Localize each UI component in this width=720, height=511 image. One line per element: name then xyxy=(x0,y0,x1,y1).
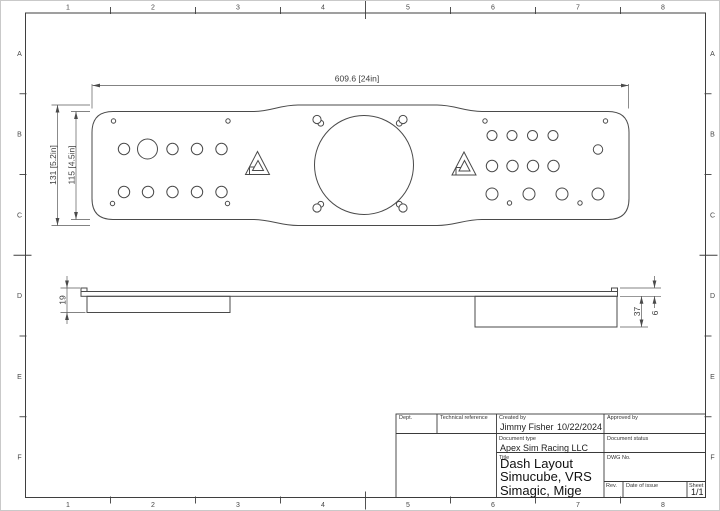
created-by-label: Created by xyxy=(499,415,526,421)
drawing-title-line3: Simagic, Mige xyxy=(500,484,582,498)
created-by-date: 10/22/2024 xyxy=(557,422,602,432)
rev-label: Rev. xyxy=(606,483,617,489)
created-by-name: Jimmy Fisher xyxy=(500,422,554,432)
document-type-label: Document type xyxy=(499,436,536,442)
document-type-value: Apex Sim Racing LLC xyxy=(500,443,588,453)
drawing-title-line1: Dash Layout xyxy=(500,457,573,471)
date-of-issue-label: Date of issue xyxy=(626,483,658,489)
document-status-label: Document status xyxy=(607,436,648,442)
approved-by-label: Approved by xyxy=(607,415,638,421)
technical-reference-label: Technical reference xyxy=(440,415,488,421)
dwg-no-label: DWG No. xyxy=(607,455,631,461)
title-block: Dept. Technical reference Created by App… xyxy=(0,0,720,511)
drawing-title-line2: Simucube, VRS xyxy=(500,470,592,484)
dept-label: Dept. xyxy=(399,415,412,421)
drawing-sheet: 1122334455667788AABBCCDDEEFF xyxy=(0,0,720,511)
sheet-value: 1/1 xyxy=(691,487,704,497)
